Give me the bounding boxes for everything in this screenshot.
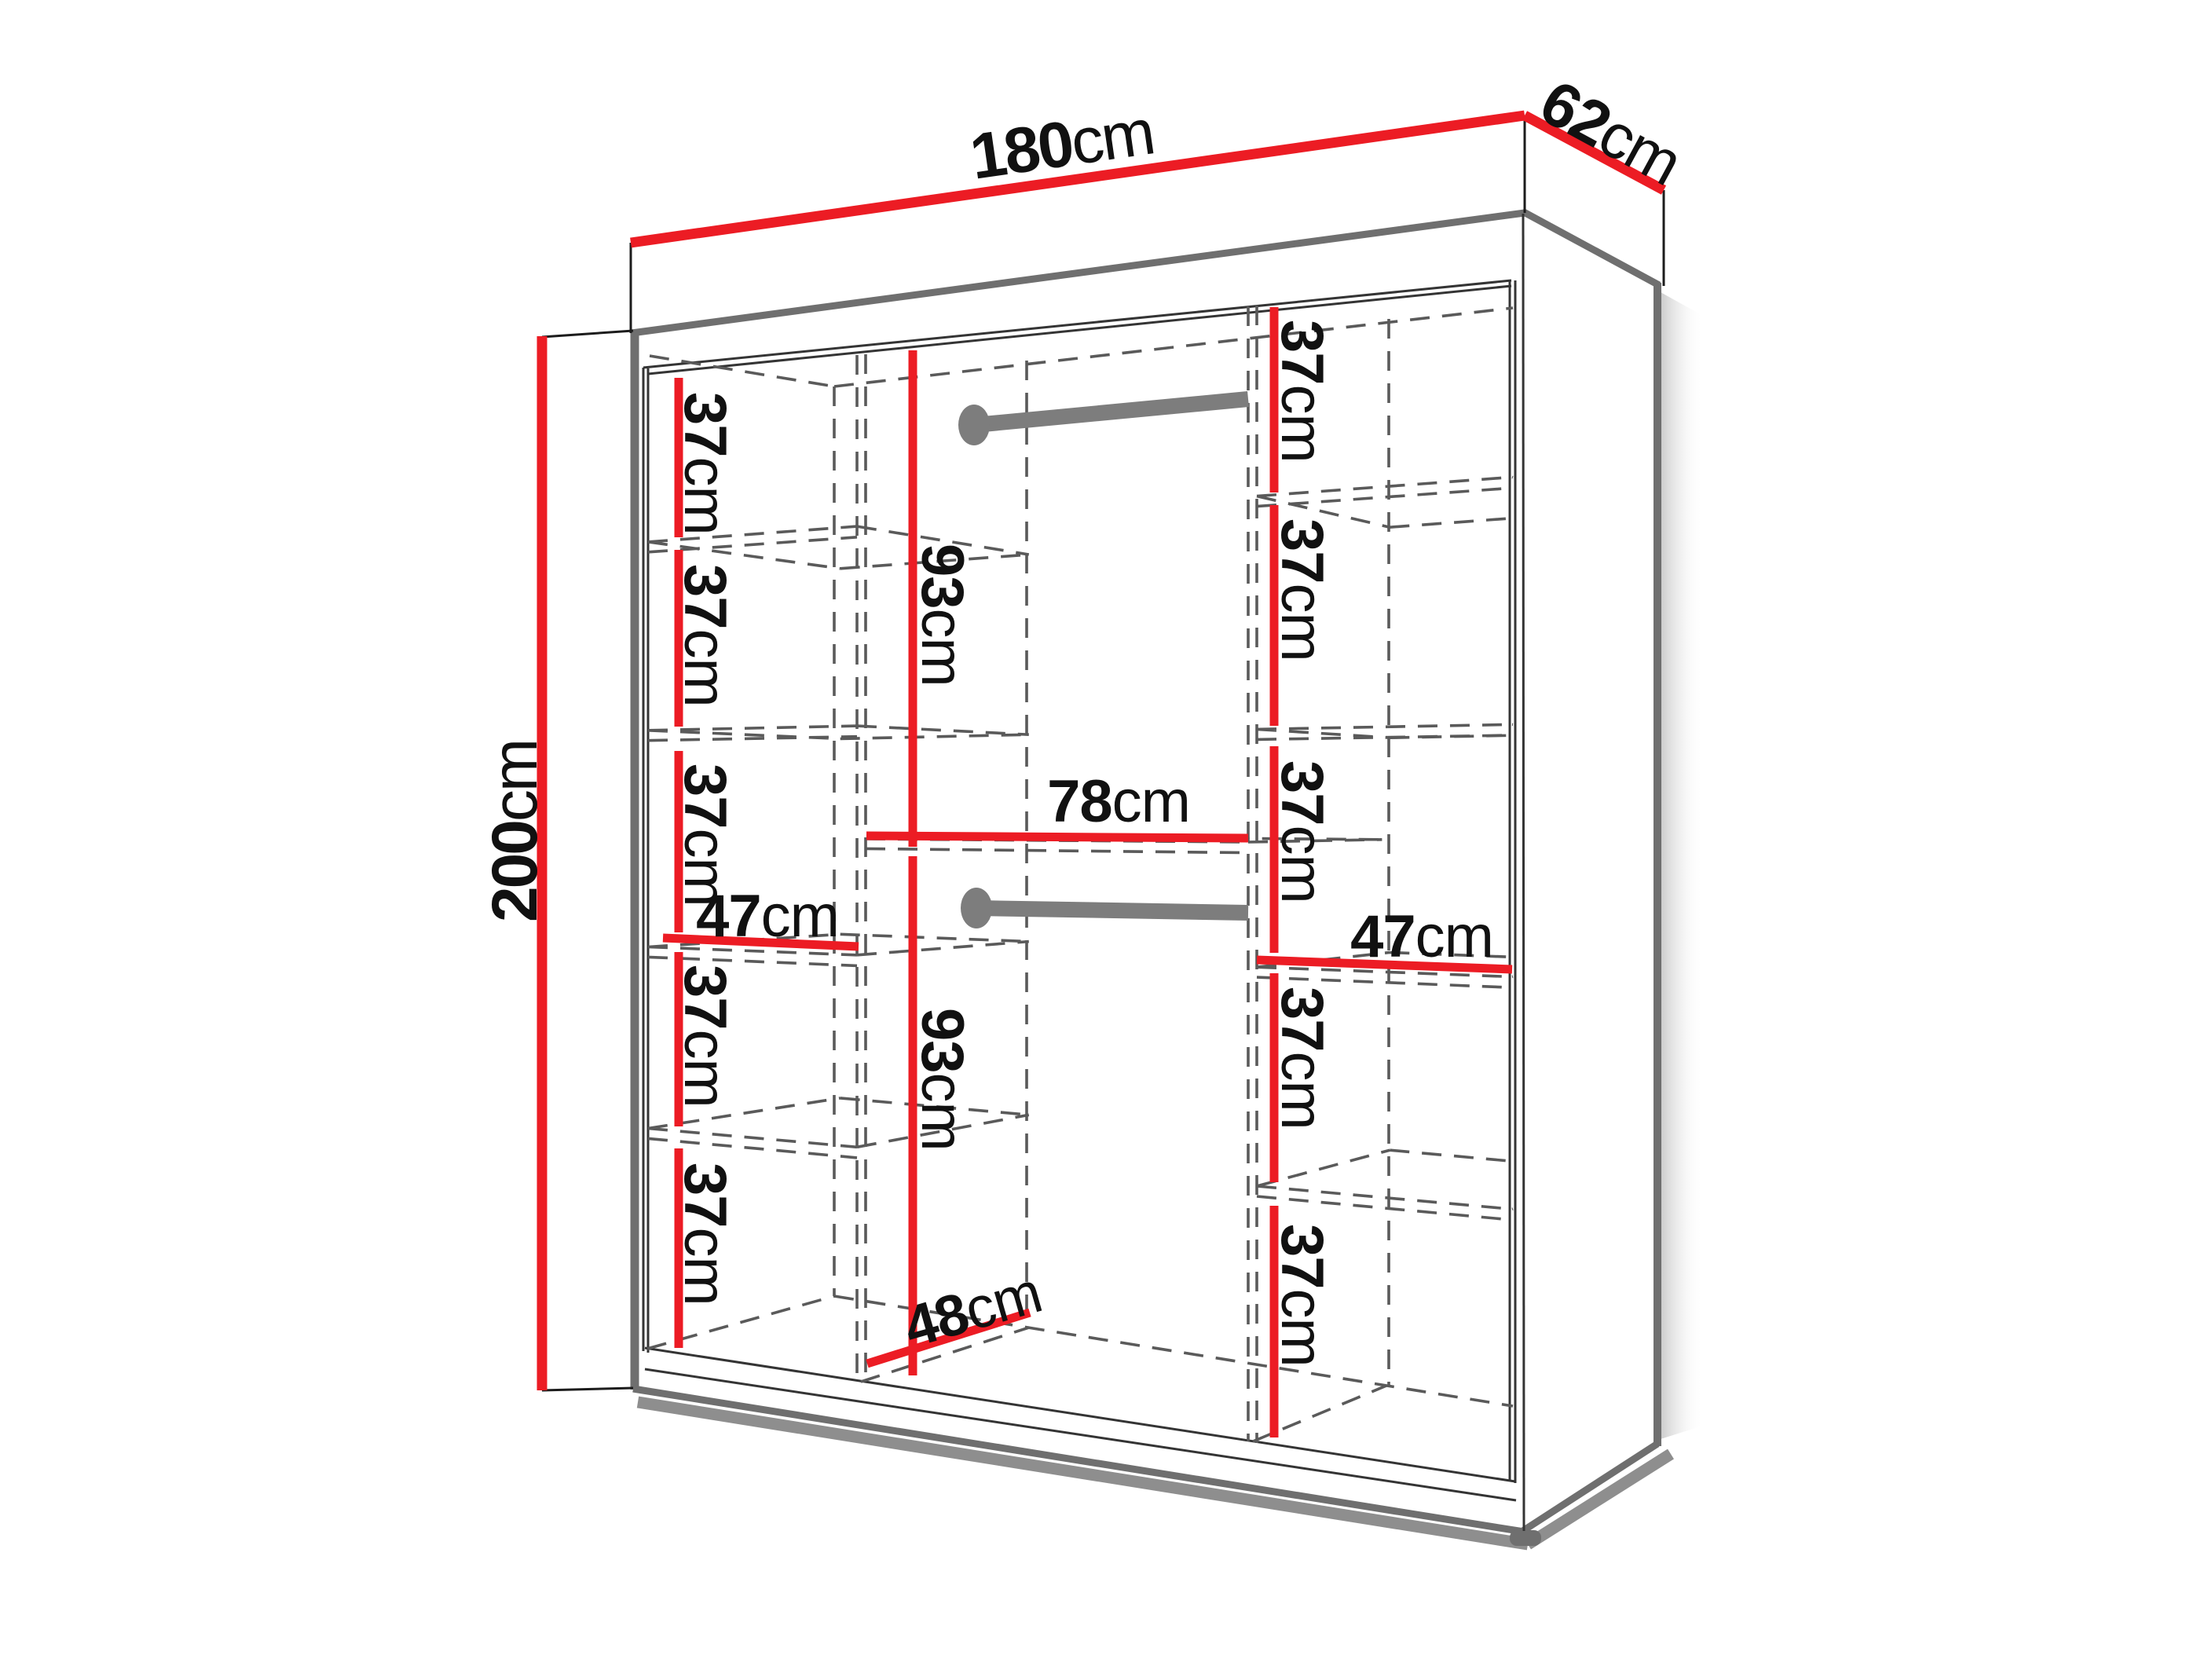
svg-text:37cm: 37cm [672,392,738,535]
svg-text:37cm: 37cm [1269,1224,1335,1367]
svg-text:37cm: 37cm [672,965,738,1108]
svg-text:93cm: 93cm [909,1008,976,1151]
svg-text:78cm: 78cm [1047,768,1190,835]
svg-text:47cm: 47cm [696,883,839,950]
svg-text:37cm: 37cm [1269,987,1335,1130]
svg-text:200cm: 200cm [479,741,551,922]
svg-text:37cm: 37cm [672,564,738,707]
svg-text:37cm: 37cm [1269,518,1335,661]
svg-text:37cm: 37cm [672,1163,738,1306]
svg-text:37cm: 37cm [1269,320,1335,463]
svg-text:37cm: 37cm [1269,760,1335,903]
svg-text:93cm: 93cm [909,544,976,687]
svg-text:47cm: 47cm [1350,903,1493,970]
